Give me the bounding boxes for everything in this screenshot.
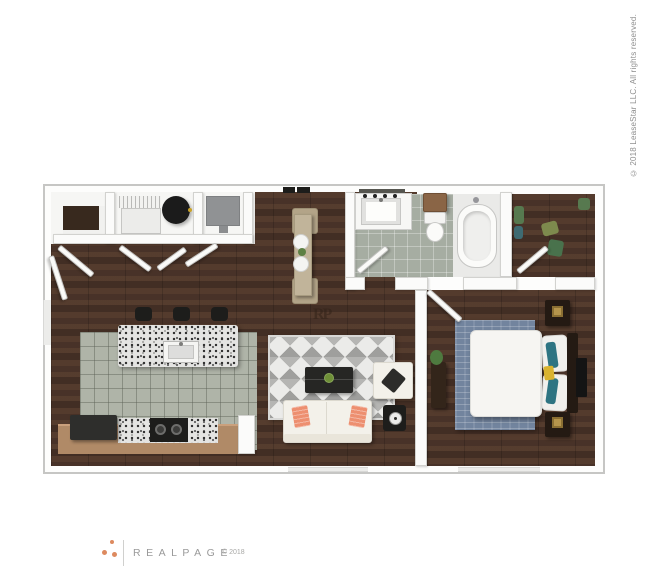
wall-tv [576, 358, 587, 397]
hall-wall-segment [395, 277, 428, 290]
refrigerator [70, 415, 117, 440]
water-heater [162, 196, 190, 224]
hanging-clothes [514, 206, 524, 224]
bathroom-closet-divider-wall [500, 192, 512, 277]
realpage-floor-watermark: RP [313, 306, 330, 324]
bedroom-plant [430, 350, 443, 365]
top-wall-vent [297, 187, 310, 193]
table-lamp [552, 306, 563, 317]
hvac-unit [206, 196, 240, 226]
floor-plan: RP [43, 184, 605, 474]
bathroom-left-wall [345, 192, 355, 290]
bar-stool [135, 307, 152, 321]
sofa-backrest [284, 434, 371, 442]
living-room-window [288, 467, 368, 472]
yellow-accent-pillow [543, 366, 554, 381]
vanity-faucet [379, 198, 383, 202]
burner [171, 424, 182, 435]
hall-wall-segment [463, 277, 517, 290]
over-toilet-cabinet [423, 193, 447, 212]
hall-wall-segment [345, 277, 365, 290]
table-lamp [552, 417, 563, 428]
sofa-cushion-seam [326, 402, 327, 436]
entry-recess [43, 300, 51, 345]
vanity-light [383, 194, 387, 198]
toilet-bowl [426, 222, 444, 242]
vanity-light [373, 194, 377, 198]
wire-shelf [119, 196, 161, 208]
bedroom-window [458, 467, 540, 472]
hall-wall-segment [555, 277, 595, 290]
bathtub-basin [463, 211, 491, 261]
sink-faucet [179, 342, 183, 346]
water-heater-valve [188, 208, 192, 212]
vanity-light [393, 194, 397, 198]
brand-name: REALPAGE [133, 547, 233, 559]
dresser [431, 362, 446, 408]
vanity-basin [366, 202, 396, 221]
vertical-copyright-text: © 2018 LeaseStar LLC. All rights reserve… [629, 14, 638, 177]
bedroom-living-wall [415, 290, 427, 466]
vanity-light [363, 194, 367, 198]
coral-pillow [291, 405, 310, 428]
sink-basin [168, 345, 194, 359]
table-fan-hub [394, 417, 397, 420]
bar-stool [173, 307, 190, 321]
logo-divider [123, 540, 124, 566]
closet-front-wall [53, 234, 253, 244]
bed-duvet [470, 330, 542, 417]
vanity-mirror-strip [359, 189, 405, 193]
hanging-clothes [578, 198, 590, 210]
kitchen-end-wall [238, 415, 255, 454]
hvac-knob [219, 226, 228, 233]
bar-stool [211, 307, 228, 321]
tub-faucet [473, 197, 479, 203]
dinner-plate [293, 256, 309, 272]
entry-closet-interior [63, 206, 105, 234]
washer [121, 208, 161, 234]
burner [155, 424, 166, 435]
table-plant [298, 248, 306, 256]
hanging-clothes [514, 226, 523, 239]
coffee-table-plant [324, 373, 334, 383]
hanging-clothes [547, 239, 565, 257]
top-wall-vent [283, 187, 295, 193]
brand-copyright: © 2018 [222, 549, 245, 556]
